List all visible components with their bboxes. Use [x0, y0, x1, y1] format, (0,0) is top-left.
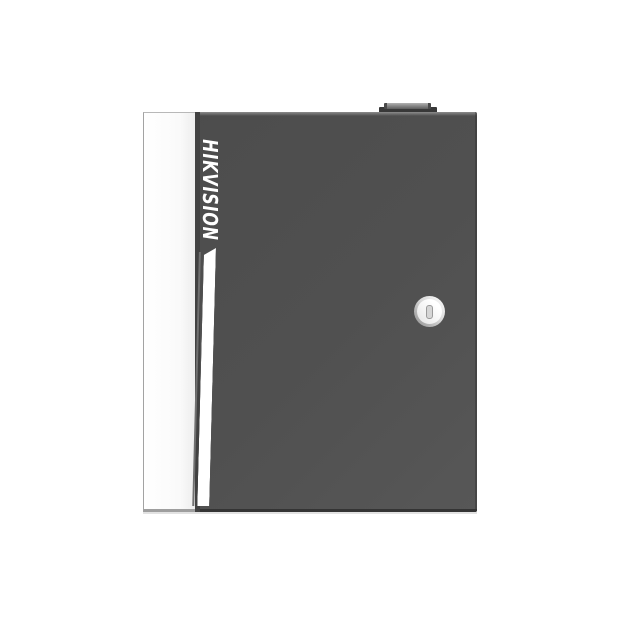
white-side-strip	[143, 112, 195, 512]
top-knob-cap	[384, 103, 431, 109]
key-slot-icon	[426, 305, 433, 319]
door-right-edge	[475, 112, 477, 512]
keyhole-lock	[414, 296, 445, 327]
door-top-bevel	[195, 112, 477, 116]
cabinet-bottom-shadow	[143, 512, 477, 514]
lock-face	[417, 299, 442, 324]
product-photo-canvas: HIKVISION	[0, 0, 620, 620]
brand-logotype: HIKVISION	[198, 138, 222, 242]
enclosure-cabinet: HIKVISION	[143, 112, 477, 512]
